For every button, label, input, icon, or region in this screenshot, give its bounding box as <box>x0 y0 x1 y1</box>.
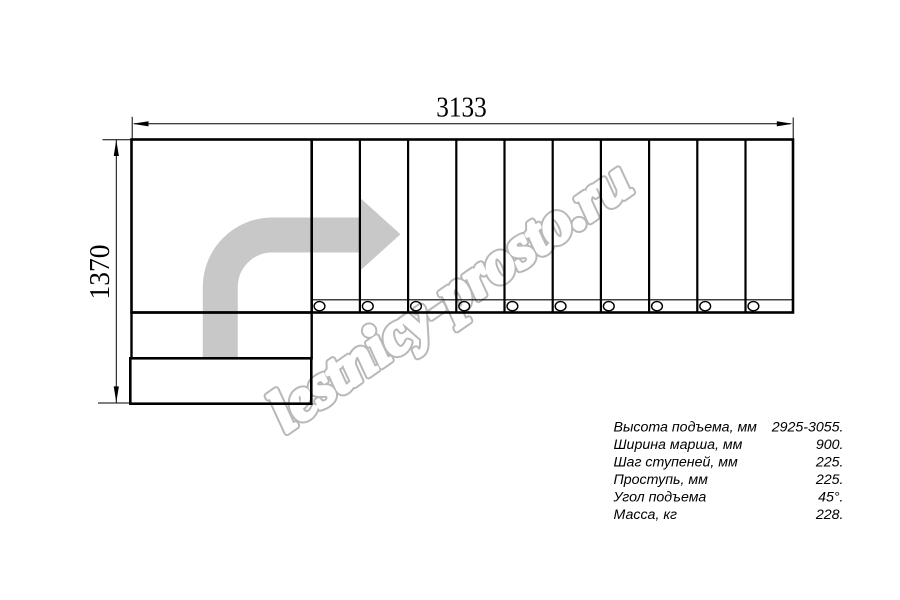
svg-text:3133: 3133 <box>436 93 487 124</box>
svg-text:Масса, кг: Масса, кг <box>614 507 678 523</box>
svg-text:2925-3055.: 2925-3055. <box>771 420 844 436</box>
svg-text:Шаг ступеней, мм: Шаг ступеней, мм <box>614 455 738 471</box>
svg-text:Ширина марша, мм: Ширина марша, мм <box>614 437 743 453</box>
svg-text:225.: 225. <box>815 455 844 471</box>
svg-text:Угол подъема: Угол подъема <box>613 490 707 506</box>
svg-text:228.: 228. <box>815 507 844 523</box>
svg-text:225.: 225. <box>815 472 844 488</box>
svg-text:Высота подъема, мм: Высота подъема, мм <box>614 420 758 436</box>
svg-text:lestnicy-prosto.ru: lestnicy-prosto.ru <box>256 147 643 444</box>
svg-text:45°.: 45°. <box>818 490 843 506</box>
svg-text:Проступь, мм: Проступь, мм <box>614 472 709 488</box>
svg-text:1370: 1370 <box>85 245 116 300</box>
svg-text:900.: 900. <box>816 437 844 453</box>
